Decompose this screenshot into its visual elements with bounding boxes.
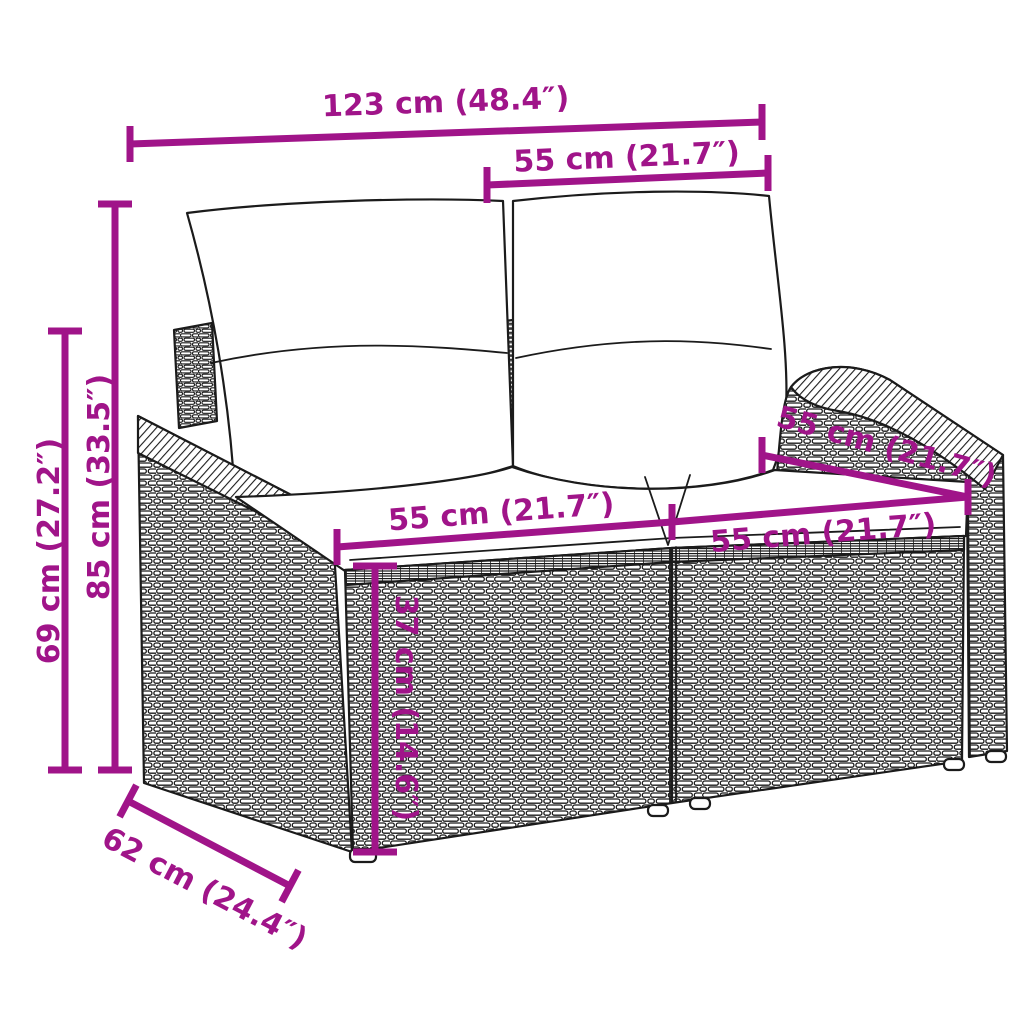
foot bbox=[986, 751, 1006, 762]
dim-armrest-height-label: 69 cm (27.2″) bbox=[32, 438, 67, 665]
foot bbox=[944, 759, 964, 770]
dim-overall-height: 85 cm (33.5″) bbox=[82, 204, 132, 770]
back-frame-left-post bbox=[174, 323, 217, 428]
sofa-dimension-drawing: 123 cm (48.4″) 55 cm (21.7″) 85 cm (33.5… bbox=[0, 0, 1024, 1024]
foot bbox=[648, 805, 668, 816]
base-front-right-panel bbox=[672, 536, 964, 803]
right-back-cushion bbox=[513, 192, 786, 489]
dim-overall-width-label: 123 cm (48.4″) bbox=[321, 81, 569, 125]
dimension-diagram: 123 cm (48.4″) 55 cm (21.7″) 85 cm (33.5… bbox=[0, 0, 1024, 1024]
foot bbox=[690, 798, 710, 809]
dim-seat-height-label: 37 cm (14.6″) bbox=[388, 595, 423, 822]
dim-overall-height-label: 85 cm (33.5″) bbox=[82, 374, 117, 601]
dim-armrest-height: 69 cm (27.2″) bbox=[32, 331, 82, 770]
